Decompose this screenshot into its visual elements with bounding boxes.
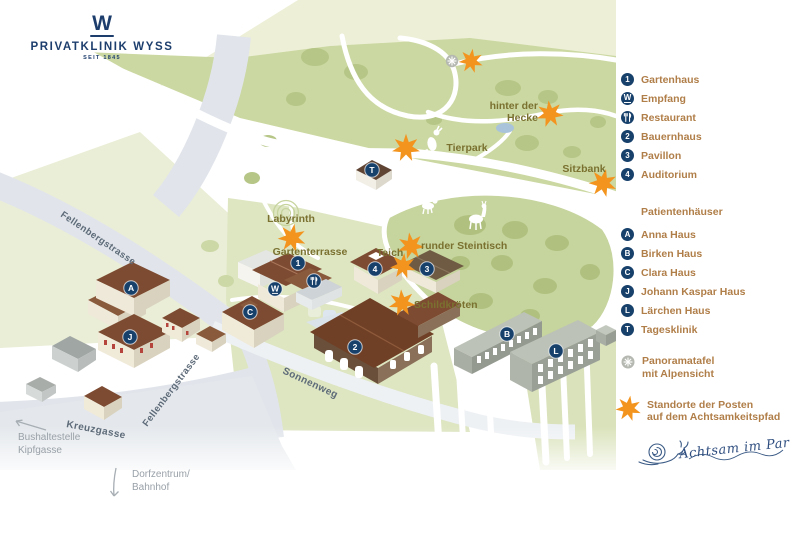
label-hinter-der-hecke-2: Hecke xyxy=(507,112,538,124)
svg-text:4: 4 xyxy=(373,264,378,274)
legend-label-pavillon: Pavillon xyxy=(641,150,681,162)
logo-underline xyxy=(90,35,114,37)
fork-knife-icon xyxy=(621,111,634,124)
panorama-map-icon xyxy=(446,55,458,67)
slogan-text: Achtsam im Park xyxy=(678,435,790,462)
badge-pavillon: 3 xyxy=(420,262,434,276)
badge-a: A xyxy=(621,228,634,241)
label-hinter-der-hecke-1: hinter der xyxy=(490,100,538,112)
legend-item-birken-haus: B Birken Haus xyxy=(621,244,792,263)
badge-t: T xyxy=(621,323,634,336)
panorama-line1: Panoramatafel xyxy=(642,355,714,368)
legend-label-tagesklinik: Tagesklinik xyxy=(641,324,697,336)
label-tierpark: Tierpark xyxy=(446,142,487,154)
badge-clara-haus: C xyxy=(243,305,257,319)
legend-label-johann-kaspar-haus: Johann Kaspar Haus xyxy=(641,286,745,298)
svg-text:1: 1 xyxy=(296,258,301,268)
legend: 1 Gartenhaus W Empfang Restaurant 2 Baue… xyxy=(621,70,792,478)
badge-2: 2 xyxy=(621,130,634,143)
svg-text:T: T xyxy=(369,165,375,175)
legend-item-laerchen-haus: L Lärchen Haus xyxy=(621,301,792,320)
legend-item-panoramatafel: Panoramatafel mit Alpensicht xyxy=(621,355,792,380)
legend-item-empfang: W Empfang xyxy=(621,89,792,108)
site-map-page: 1 W 2 3 4 A J C B L T Labyrinth Gartente… xyxy=(0,0,792,558)
panorama-icon xyxy=(621,355,635,374)
panorama-line2: mit Alpensicht xyxy=(642,368,714,381)
legend-item-pavillon: 3 Pavillon xyxy=(621,146,792,165)
badge-1: 1 xyxy=(621,73,634,86)
posts-line1: Standorte der Posten xyxy=(647,399,780,412)
label-bushaltestelle: Bushaltestelle xyxy=(18,432,81,443)
post-star-icon xyxy=(615,395,642,427)
legend-label-birken-haus: Birken Haus xyxy=(641,248,702,260)
clinic-logo: W PRIVATKLINIK WYSS SEIT 1845 xyxy=(27,13,177,61)
legend-label-clara-haus: Clara Haus xyxy=(641,267,696,279)
badge-b: B xyxy=(621,247,634,260)
svg-text:B: B xyxy=(504,329,510,339)
label-teich: Teich xyxy=(377,247,404,259)
badge-l: L xyxy=(621,304,634,317)
legend-label-auditorium: Auditorium xyxy=(641,169,697,181)
badge-laerchen-haus: L xyxy=(549,344,563,358)
legend-item-clara-haus: C Clara Haus xyxy=(621,263,792,282)
label-dorfzentrum: Dorfzentrum/ xyxy=(132,469,190,480)
legend-item-restaurant: Restaurant xyxy=(621,108,792,127)
badge-empfang: W xyxy=(268,282,282,296)
badge-c: C xyxy=(621,266,634,279)
legend-label-empfang: Empfang xyxy=(641,93,686,105)
logo-w-mark: W xyxy=(27,13,177,34)
legend-label-anna-haus: Anna Haus xyxy=(641,229,696,241)
legend-label-bauernhaus: Bauernhaus xyxy=(641,131,702,143)
label-kipfgasse: Kipfgasse xyxy=(18,445,62,456)
svg-text:W: W xyxy=(271,284,280,294)
svg-text:2: 2 xyxy=(353,342,358,352)
label-sitzbank: Sitzbank xyxy=(562,163,605,175)
badge-johann-kaspar-haus: J xyxy=(123,330,137,344)
label-bahnhof: Bahnhof xyxy=(132,482,169,493)
legend-item-tagesklinik: T Tagesklinik xyxy=(621,320,792,339)
badge-birken-haus: B xyxy=(500,327,514,341)
badge-anna-haus: A xyxy=(124,281,138,295)
legend-item-johann-kaspar-haus: J Johann Kaspar Haus xyxy=(621,282,792,301)
label-runder-steintisch: runder Steintisch xyxy=(421,240,507,252)
badge-bauernhaus: 2 xyxy=(348,340,362,354)
label-labyrinth: Labyrinth xyxy=(267,213,315,225)
badge-3: 3 xyxy=(621,149,634,162)
legend-item-bauernhaus: 2 Bauernhaus xyxy=(621,127,792,146)
legend-label-restaurant: Restaurant xyxy=(641,112,696,124)
svg-text:A: A xyxy=(128,283,134,293)
clinic-site-map: 1 W 2 3 4 A J C B L T Labyrinth Gartente… xyxy=(0,0,622,520)
badge-tagesklinik: T xyxy=(365,163,379,177)
badge-w-letter: W xyxy=(624,94,632,103)
badge-auditorium: 4 xyxy=(368,262,382,276)
legend-item-anna-haus: A Anna Haus xyxy=(621,225,792,244)
svg-text:J: J xyxy=(128,332,133,342)
posts-line2: auf dem Achtsamkeitspfad xyxy=(647,411,780,424)
badge-restaurant xyxy=(307,274,321,288)
svg-text:L: L xyxy=(553,346,558,356)
label-schildkroeten: Schildkröten xyxy=(414,299,478,311)
badge-w: W xyxy=(621,92,634,105)
legend-label-laerchen-haus: Lärchen Haus xyxy=(641,305,710,317)
patients-header: Patientenhäuser xyxy=(641,206,792,218)
svg-text:3: 3 xyxy=(425,264,430,274)
legend-item-auditorium: 4 Auditorium xyxy=(621,165,792,184)
legend-item-gartenhaus: 1 Gartenhaus xyxy=(621,70,792,89)
legend-label-gartenhaus: Gartenhaus xyxy=(641,74,699,86)
legend-item-posts: Standorte der Posten auf dem Achtsamkeit… xyxy=(615,395,792,427)
logo-name: PRIVATKLINIK WYSS xyxy=(27,41,177,53)
label-gartenterrasse: Gartenterrasse xyxy=(273,246,348,258)
badge-j: J xyxy=(621,285,634,298)
bottom-fade xyxy=(0,426,622,520)
achtsam-im-park-doodle: Achtsam im Park xyxy=(619,429,792,478)
badge-4: 4 xyxy=(621,168,634,181)
logo-since: SEIT 1845 xyxy=(27,55,177,61)
svg-text:C: C xyxy=(247,307,253,317)
